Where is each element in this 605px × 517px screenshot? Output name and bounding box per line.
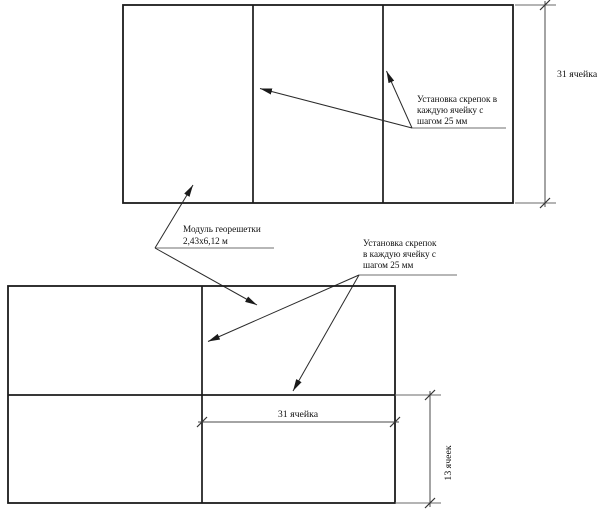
diagram-svg: 31 ячейка Установка скрепок в каждую яче… [0, 0, 605, 517]
geogrid-installation-diagram: 31 ячейка Установка скрепок в каждую яче… [0, 0, 605, 517]
module-leader-arrow-down [155, 248, 257, 305]
staples-bottom-leader-arrow-2 [293, 275, 359, 391]
staples-top-annotation-line-3: шагом 25 мм [417, 116, 468, 126]
staples-top-annotation-line-2: каждую ячейку с [417, 105, 483, 115]
staples-top-leader-arrow-1 [260, 89, 412, 129]
staples-top-leader-arrow-2 [387, 71, 413, 128]
staples-bottom-leader-arrow-1 [208, 275, 359, 342]
bottom-width-dimension-label: 31 ячейка [278, 409, 319, 420]
module-annotation-line-2: 2,43х6,12 м [183, 236, 228, 246]
staples-bottom-annotation-line-2: в каждую ячейку с [363, 249, 436, 259]
module-annotation-line-1: Модуль георешетки [183, 224, 261, 234]
staples-bottom-annotation-line-3: шагом 25 мм [363, 260, 414, 270]
staples-top-annotation-line-1: Установка скрепок в [417, 94, 498, 104]
top-height-dimension-label: 31 ячейка [557, 69, 598, 80]
bottom-height-dimension-label: 13 ячеек [443, 445, 454, 480]
staples-bottom-annotation-line-1: Установка скрепок [363, 238, 437, 248]
